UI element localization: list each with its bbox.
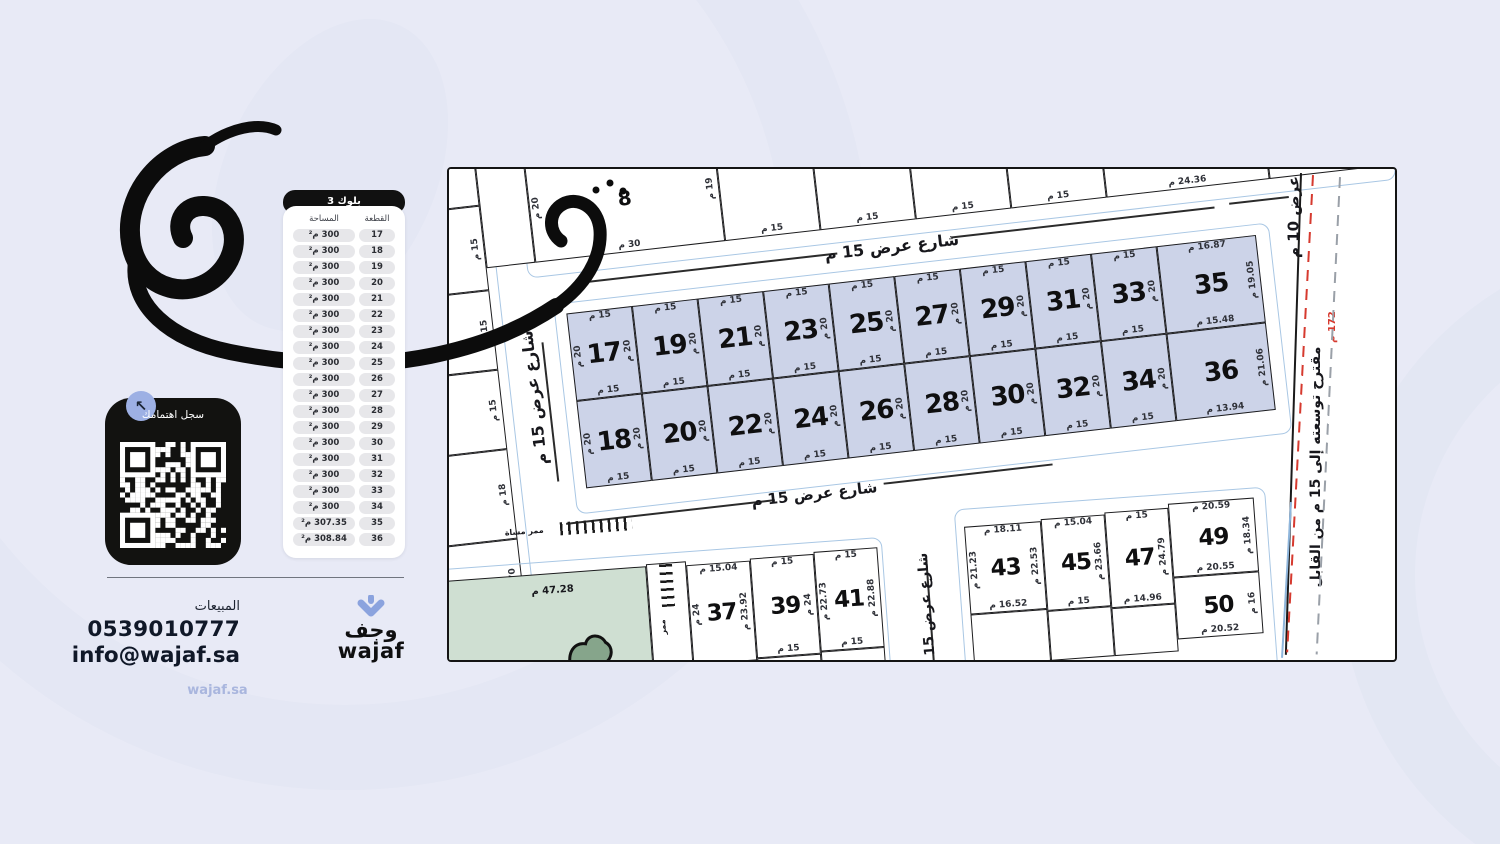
table-row: 27300 م² [290, 389, 398, 402]
map-right-edge: عرض 10 ممقترح توسعته إلى 15 م من القابل1… [449, 169, 1395, 660]
qr-card: ↖ سجل اهتمامك [105, 398, 241, 565]
table-row: 34300 م² [290, 501, 398, 514]
table-row: 19300 م² [290, 261, 398, 274]
plot-area-cell: 308.84 م² [293, 533, 355, 546]
plot-number-cell: 26 [359, 373, 395, 386]
plot-area-cell: 300 م² [293, 229, 355, 242]
column-header-area: المساحة [293, 214, 355, 224]
plot-number-cell: 19 [359, 261, 395, 274]
plot-number-cell: 22 [359, 309, 395, 322]
block-3-table: بلوك 3 القطعة المساحة 17300 م²18300 م²19… [283, 190, 405, 558]
plot-area-cell: 300 م² [293, 293, 355, 306]
table-row: 33300 م² [290, 485, 398, 498]
table-row: 18300 م² [290, 245, 398, 258]
plot-number-cell: 28 [359, 405, 395, 418]
plot-area-cell: 300 م² [293, 405, 355, 418]
table-row: 35307.35 م² [290, 517, 398, 530]
plot-number-cell: 31 [359, 453, 395, 466]
table-row: 22300 م² [290, 309, 398, 322]
plot-area-cell: 300 م² [293, 309, 355, 322]
table-row: 28300 م² [290, 405, 398, 418]
plot-area-cell: 300 م² [293, 469, 355, 482]
plot-number-cell: 32 [359, 469, 395, 482]
plot-area-cell: 307.35 م² [293, 517, 355, 530]
table-row: 31300 م² [290, 453, 398, 466]
subdivision-map: 15 م15 م15 م18 م23.70 م820 م30 م19 م15 م… [447, 167, 1397, 662]
plot-area-cell: 300 م² [293, 421, 355, 434]
table-row: 17300 م² [290, 229, 398, 242]
plot-number-cell: 27 [359, 389, 395, 402]
table-row: 25300 م² [290, 357, 398, 370]
plot-area-cell: 300 م² [293, 389, 355, 402]
logo-arabic-name: وجف [330, 619, 412, 641]
plot-number-cell: 21 [359, 293, 395, 306]
plot-number-cell: 25 [359, 357, 395, 370]
plot-area-cell: 300 م² [293, 373, 355, 386]
plot-area-cell: 300 م² [293, 501, 355, 514]
plot-area-cell: 300 م² [293, 261, 355, 274]
divider [107, 577, 404, 578]
phone-number[interactable]: 0539010777 [55, 617, 240, 642]
plot-number-cell: 18 [359, 245, 395, 258]
plot-area-cell: 300 م² [293, 245, 355, 258]
plot-number-cell: 24 [359, 341, 395, 354]
table-body: القطعة المساحة 17300 م²18300 م²19300 م²2… [283, 206, 405, 558]
plot-area-cell: 300 م² [293, 357, 355, 370]
table-row: 26300 م² [290, 373, 398, 386]
plot-area-cell: 300 م² [293, 325, 355, 338]
column-header-plot: القطعة [359, 214, 395, 224]
table-row: 36308.84 م² [290, 533, 398, 546]
plot-number-cell: 23 [359, 325, 395, 338]
plot-area-cell: 300 م² [293, 453, 355, 466]
plot-number-cell: 30 [359, 437, 395, 450]
table-row: 29300 م² [290, 421, 398, 434]
wajaf-logo: وجف wajaf [330, 595, 412, 662]
plot-number-cell: 33 [359, 485, 395, 498]
table-row: 32300 م² [290, 469, 398, 482]
plot-number-cell: 17 [359, 229, 395, 242]
contact-block: المبيعات 0539010777 info@wajaf.sa [55, 599, 240, 668]
plot-area-cell: 300 م² [293, 341, 355, 354]
table-row: 24300 م² [290, 341, 398, 354]
plot-number-cell: 20 [359, 277, 395, 290]
table-row: 20300 م² [290, 277, 398, 290]
table-row: 21300 م² [290, 293, 398, 306]
table-row: 30300 م² [290, 437, 398, 450]
website-link[interactable]: wajaf.sa [130, 683, 305, 698]
plot-number-cell: 35 [359, 517, 395, 530]
plot-area-cell: 300 م² [293, 277, 355, 290]
table-row: 23300 م² [290, 325, 398, 338]
plot-area-cell: 300 م² [293, 437, 355, 450]
email-address[interactable]: info@wajaf.sa [55, 643, 240, 668]
logo-latin-name: wajaf [330, 641, 412, 662]
sales-label: المبيعات [55, 599, 240, 614]
qr-code [120, 442, 226, 548]
logo-bird-icon [355, 595, 387, 617]
qr-label: سجل اهتمامك [105, 409, 241, 421]
plot-number-cell: 29 [359, 421, 395, 434]
plot-number-cell: 36 [359, 533, 395, 546]
parcel [693, 660, 761, 662]
page: 15 م15 م15 م18 م23.70 م820 م30 م19 م15 م… [0, 0, 1500, 844]
plot-number-cell: 34 [359, 501, 395, 514]
table-rows: 17300 م²18300 م²19300 م²20300 م²21300 م²… [290, 229, 398, 546]
plot-area-cell: 300 م² [293, 485, 355, 498]
